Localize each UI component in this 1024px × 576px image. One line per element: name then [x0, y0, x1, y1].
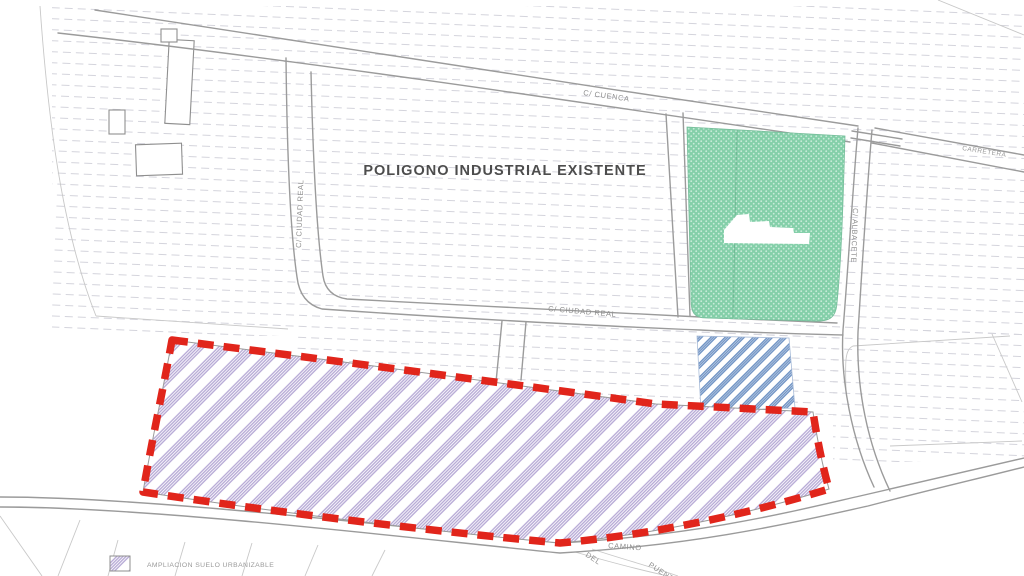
building-long: [165, 39, 194, 124]
building-wide: [135, 143, 182, 176]
legend-swatch-purple-hatch: [110, 556, 130, 571]
planning-map-screenshot: POLIGONO INDUSTRIAL EXISTENTE C/ CUENCA …: [0, 0, 1024, 576]
map-title: POLIGONO INDUSTRIAL EXISTENTE: [363, 163, 646, 179]
building-square: [109, 110, 125, 134]
building-small-annex: [161, 29, 177, 42]
road-label-albacete: C/ ALBACETE: [849, 208, 860, 263]
legend-item-label: AMPLIACION SUELO URBANIZABLE: [147, 562, 274, 569]
planning-map: POLIGONO INDUSTRIAL EXISTENTE C/ CUENCA …: [0, 0, 1024, 576]
blue-hatched-parcel: [697, 336, 795, 411]
green-stippled-parcel: [687, 127, 845, 321]
